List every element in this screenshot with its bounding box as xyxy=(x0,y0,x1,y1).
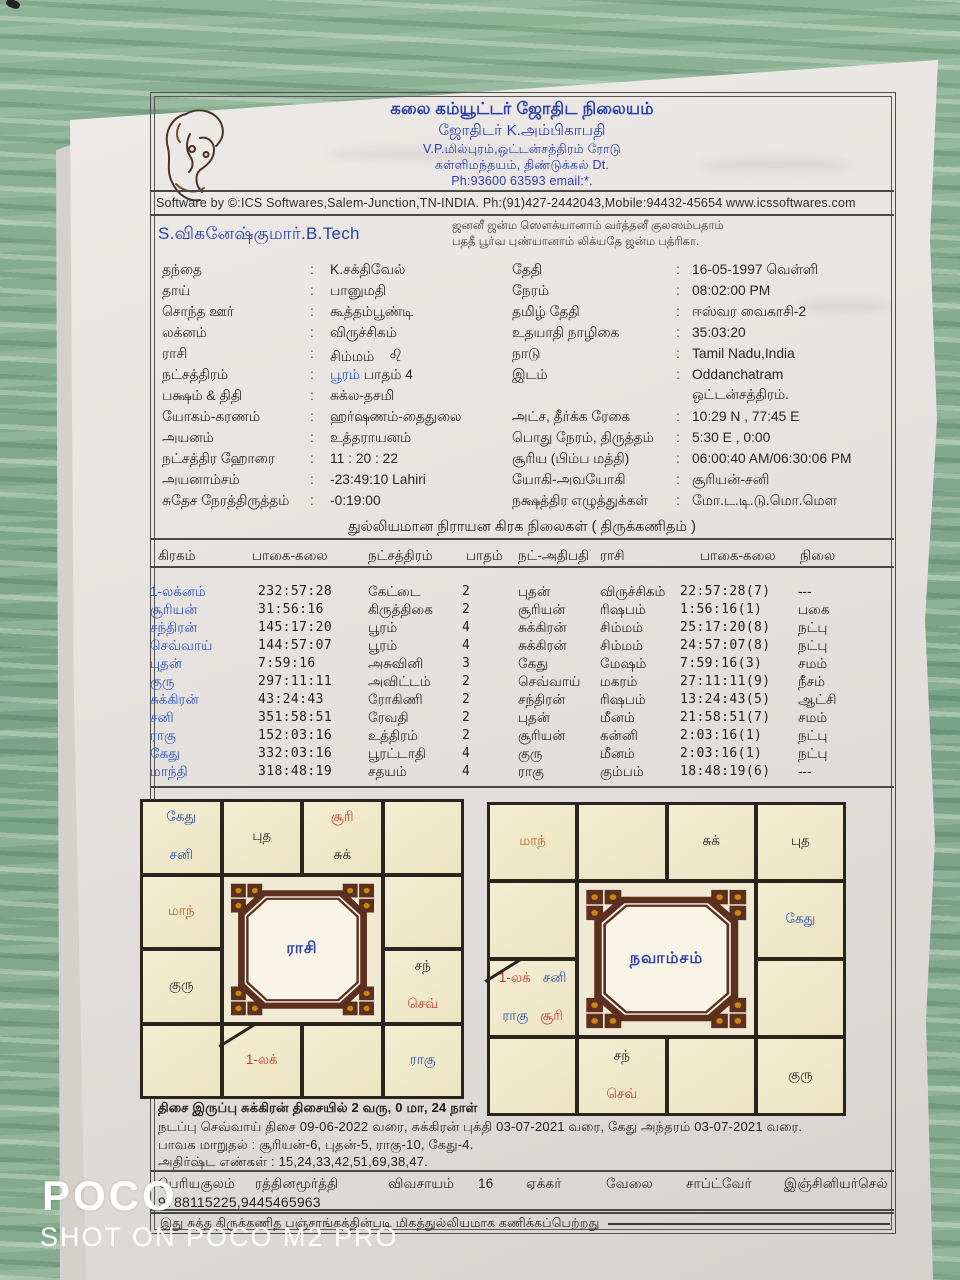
chart-cell-r1c0 xyxy=(490,883,575,957)
planet-cell: 318:48:19 xyxy=(258,764,332,779)
planet-line: மாந் xyxy=(519,833,546,851)
detail-value: 06:00:40 AM/06:30:06 PM xyxy=(692,451,852,466)
camera-watermark-brand: POCO xyxy=(42,1172,178,1220)
family-detail-item: விவசாயம் xyxy=(388,1176,454,1194)
planet-abbr: குரு xyxy=(169,977,193,995)
planet-cell: 332:03:16 xyxy=(258,746,332,761)
detail-value: பூரம் பாதம் 4 xyxy=(330,367,413,385)
detail-colon: : xyxy=(310,472,314,487)
org-address-line1: V.P.மில்புரம்,ஒட்டன்சத்திரம் ரோடு xyxy=(150,142,894,158)
chart-cell-r3c1: சந்செவ் xyxy=(579,1039,664,1113)
detail-colon: : xyxy=(310,304,314,319)
chart-cell-r1c3: கேது xyxy=(758,883,843,957)
column-header: கிரகம் xyxy=(158,548,196,566)
detail-row: நக்ஷத்திர எழுத்துக்கள்:மோ.ட.டி.டு.மொ.மௌ xyxy=(512,493,852,513)
planet-abbr: ராகு xyxy=(502,1008,528,1026)
planet-cell: 2 xyxy=(462,710,470,725)
detail-label: உதயாதி நாழிகை xyxy=(512,325,619,343)
chart-cell-r3c3: குரு xyxy=(758,1039,843,1113)
detail-value: 16-05-1997 வெள்ளி xyxy=(692,262,818,280)
detail-row: பக்ஷம் & திதி:சுக்ல-தசமி xyxy=(162,388,502,408)
planet-cell: 4 xyxy=(462,764,470,779)
planet-line: புத xyxy=(791,833,810,851)
planet-cell: சூரியன் xyxy=(518,602,565,620)
detail-label: அயனாம்சம் xyxy=(162,472,240,490)
detail-colon: : xyxy=(676,262,680,277)
planet-line: செவ் xyxy=(606,1086,637,1104)
planet-cell: 1-லக்னம் xyxy=(150,584,206,602)
detail-colon: : xyxy=(676,367,680,382)
footer-rule-2b xyxy=(150,1212,894,1214)
planet-cell: 145:17:20 xyxy=(258,620,332,635)
planet-cell: நட்பு xyxy=(798,620,827,638)
planet-row: குரு297:11:11அவிட்டம்2செவ்வாய்மகரம்27:11… xyxy=(150,674,894,691)
detail-label: நேரம் xyxy=(512,283,549,301)
detail-label: நக்ஷத்திர எழுத்துக்கள் xyxy=(512,493,648,511)
planet-row: சனி351:58:51ரேவதி2புதன்மீனம்21:58:51(7)ச… xyxy=(150,710,894,727)
planet-line: கேது xyxy=(785,911,815,929)
planet-abbr: சந் xyxy=(415,958,431,976)
planet-cell: 22:57:28(7) xyxy=(680,584,771,599)
detail-row: யோகி-அவயோகி:சூரியன்-சனி xyxy=(512,472,852,492)
detail-colon: : xyxy=(676,430,680,445)
title-rule xyxy=(150,538,894,540)
photo-corner-mark xyxy=(5,0,21,10)
planet-cell: உத்திரம் xyxy=(368,728,418,746)
detail-value-accent: பூரம் xyxy=(330,367,360,382)
org-name: கலை கம்யூட்டர் ஜோதிட நிலையம் xyxy=(150,100,894,121)
detail-label: பக்ஷம் & திதி xyxy=(162,388,242,406)
detail-label: யோகி-அவயோகி xyxy=(512,472,625,490)
chart-center: ராசி xyxy=(224,877,381,1022)
detail-colon: : xyxy=(676,409,680,424)
chart-cell-r0c3 xyxy=(385,802,462,873)
detail-label: தமிழ் தேதி xyxy=(512,304,580,322)
chart-cell-r1c3 xyxy=(385,877,462,948)
planet-cell: கும்பம் xyxy=(600,764,644,782)
detail-colon: : xyxy=(676,283,680,298)
planet-cell: சனி xyxy=(150,710,174,728)
detail-value: K.சக்திவேல் xyxy=(330,262,405,280)
detail-value: 08:02:00 PM xyxy=(692,283,770,298)
planet-abbr: கேது xyxy=(785,911,815,929)
planet-cell: சதயம் xyxy=(368,764,407,782)
planet-cell: பகை xyxy=(798,602,829,620)
column-header: நட்-அதிபதி xyxy=(518,548,589,566)
detail-row: யோகம்-கரணம்:ஹர்ஷணம்-தைதுலை xyxy=(162,409,502,429)
planet-cell: ரிஷபம் xyxy=(600,692,646,710)
chart-cell-r1c0: மாந் xyxy=(143,877,220,948)
planet-cell: ஆட்சி xyxy=(798,692,836,710)
planet-cell: குரு xyxy=(518,746,542,764)
detail-value: உத்தராயனம் xyxy=(330,430,411,448)
planet-cell: 21:58:51(7) xyxy=(680,710,771,725)
detail-label: தந்தை xyxy=(162,262,202,280)
planet-cell: 232:57:28 xyxy=(258,584,332,599)
planet-cell: 351:58:51 xyxy=(258,710,332,725)
planet-row: 1-லக்னம்232:57:28கேட்டை2புதன்விருச்சிகம்… xyxy=(150,584,894,601)
detail-value: சிம்மம்♌ xyxy=(330,346,403,367)
detail-value: Tamil Nadu,India xyxy=(692,346,795,361)
bhava-change-line: பாவக மாறுதல் : சூரியன்-6, புதன்-5, ராகு-… xyxy=(158,1137,474,1154)
chart-cell-r3c1: 1-லக் xyxy=(224,1026,301,1097)
footer-rule-2a xyxy=(150,1209,894,1211)
detail-label: நட்சத்திரம் xyxy=(162,367,228,385)
planet-cell: 2 xyxy=(462,584,470,599)
detail-value: 11 : 20 : 22 xyxy=(330,451,398,466)
planet-cell: 3 xyxy=(462,656,470,671)
current-dasa-line: நடப்பு செவ்வாய் திசை 09-06-2022 வரை, சுக… xyxy=(158,1119,802,1136)
family-detail-item: ரத்தினமூர்த்தி xyxy=(255,1176,338,1194)
planet-cell: --- xyxy=(798,584,812,599)
planet-abbr: புத xyxy=(791,833,810,851)
column-header: நிலை xyxy=(800,548,835,566)
column-header: பாகை-கலை xyxy=(252,548,328,566)
planet-abbr: சந் xyxy=(614,1048,630,1066)
planet-row: சுக்கிரன்43:24:43ரோகிணி2சந்திரன்ரிஷபம்13… xyxy=(150,692,894,709)
planet-cell: மீனம் xyxy=(600,746,635,764)
planet-cell: 152:03:16 xyxy=(258,728,332,743)
detail-value: சூரியன்-சனி xyxy=(692,472,769,490)
planet-row: ராகு152:03:16உத்திரம்2சூரியன்கன்னி2:03:1… xyxy=(150,728,894,745)
planet-cell: புதன் xyxy=(518,710,550,728)
detail-colon: : xyxy=(310,430,314,445)
detail-label: சுதேச நேரத்திருத்தம் xyxy=(162,493,289,511)
detail-row: சூரிய (பிம்ப மத்தி):06:00:40 AM/06:30:06… xyxy=(512,451,852,471)
chart-cell-r0c3: புத xyxy=(758,805,843,879)
planet-cell: செவ்வாய் xyxy=(150,638,212,656)
detail-label: ராசி xyxy=(162,346,187,364)
planet-cell: 24:57:07(8) xyxy=(680,638,771,653)
planet-cell: சுக்கிரன் xyxy=(518,620,567,638)
detail-value: 10:29 N , 77:45 E xyxy=(692,409,799,424)
planet-line: ராகு xyxy=(410,1052,436,1070)
detail-row: நேரம்:08:02:00 PM xyxy=(512,283,852,303)
planet-cell: 25:17:20(8) xyxy=(680,620,771,635)
detail-value-line2: ஒட்டன்சத்திரம். xyxy=(692,387,789,405)
detail-value: கூத்தம்பூண்டி xyxy=(330,304,413,322)
software-credit: Software by ©:ICS Softwares,Salem-Juncti… xyxy=(156,196,856,210)
planet-cell: 43:24:43 xyxy=(258,692,324,707)
planet-abbr: 1-லக் xyxy=(499,970,531,988)
planet-abbr: சுக் xyxy=(334,847,351,865)
planet-cell: நட்பு xyxy=(798,746,827,764)
planet-row: புதன்7:59:16அசுவினி3கேதுமேஷம்7:59:16(3)ச… xyxy=(150,656,894,673)
detail-value: மோ.ட.டி.டு.மொ.மௌ xyxy=(692,493,837,511)
planet-cell: சுக்கிரன் xyxy=(150,692,199,710)
detail-label: சொந்த ஊர் xyxy=(162,304,234,322)
chart-cell-r2c0: குரு xyxy=(143,951,220,1022)
planet-abbr: கேது xyxy=(166,809,196,827)
detail-label: அட்ச, தீர்க்க ரேகை xyxy=(512,409,630,427)
planet-cell: கேட்டை xyxy=(368,584,420,602)
planet-cell: 27:11:11(9) xyxy=(680,674,771,689)
detail-row: சுதேச நேரத்திருத்தம்:-0:19:00 xyxy=(162,493,502,513)
detail-colon: : xyxy=(676,304,680,319)
detail-label: நாடு xyxy=(512,346,540,364)
planet-cell: 7:59:16 xyxy=(258,656,316,671)
detail-value: 5:30 E , 0:00 xyxy=(692,430,770,445)
detail-value: பானுமதி xyxy=(330,283,386,301)
phone-numbers: 9788115225,9445465963 xyxy=(158,1194,321,1210)
detail-value: சுக்ல-தசமி xyxy=(330,388,394,406)
planet-cell: புதன் xyxy=(518,584,550,602)
leo-symbol-handwritten: ♌ xyxy=(387,345,404,366)
lucky-numbers-line: அதிர்ஷ்ட எண்கள் : 15,24,33,42,51,69,38,4… xyxy=(158,1154,428,1171)
software-divider xyxy=(150,214,894,216)
chart-cell-r3c2 xyxy=(304,1026,381,1097)
planet-cell: சந்திரன் xyxy=(150,620,197,638)
planet-line: புத xyxy=(252,828,271,846)
chart-cell-r3c3: ராகு xyxy=(385,1026,462,1097)
planet-cell: சூரியன் xyxy=(150,602,197,620)
closing-rule xyxy=(608,1223,891,1225)
header-divider xyxy=(150,190,894,192)
planet-abbr: செவ் xyxy=(407,996,438,1014)
chart-cell-r0c2: சுக் xyxy=(669,805,754,879)
detail-colon: : xyxy=(310,388,314,403)
detail-label: அயனம் xyxy=(162,430,214,448)
planet-cell: 297:11:11 xyxy=(258,674,332,689)
planet-cell: 2 xyxy=(462,692,470,707)
planet-cell: அவிட்டம் xyxy=(368,674,431,692)
detail-label: தேதி xyxy=(512,262,542,280)
chart-center: நவாம்சம் xyxy=(579,883,754,1035)
detail-row: தேதி:16-05-1997 வெள்ளி xyxy=(512,262,852,282)
planet-line: குரு xyxy=(788,1067,812,1085)
planet-abbr: மாந் xyxy=(168,903,195,921)
chart-cell-r0c0: கேதுசனி xyxy=(143,802,220,873)
planet-cell: நட்பு xyxy=(798,638,827,656)
planet-abbr: சுக் xyxy=(702,833,719,851)
planet-cell: சுக்கிரன் xyxy=(518,638,567,656)
chart-cell-r2c3 xyxy=(758,961,843,1035)
chart-cell-r0c1 xyxy=(579,805,664,879)
planet-line: செவ் xyxy=(407,996,438,1014)
planet-cell: 144:57:07 xyxy=(258,638,332,653)
detail-value: -23:49:10 Lahiri xyxy=(330,472,426,487)
detail-label: பொது நேரம், திருத்தம் xyxy=(512,430,654,448)
chart-cell-r0c2: சூரிசுக் xyxy=(304,802,381,873)
planet-cell: 1:56:16(1) xyxy=(680,602,762,617)
planet-table-header: கிரகம்பாகை-கலைநட்சத்திரம்பாதம்நட்-அதிபதி… xyxy=(150,548,894,564)
planet-row: மாந்தி318:48:19சதயம்4ராகுகும்பம்18:48:19… xyxy=(150,764,894,781)
family-detail-item: ஏக்கர் xyxy=(526,1176,562,1194)
org-address-line2: கள்ளிமந்தயம், திண்டுக்கல் Dt. xyxy=(150,158,894,174)
lagna-corner-mark xyxy=(216,1023,258,1049)
planet-cell: மேஷம் xyxy=(600,656,646,674)
dasa-balance-line: திசை இருப்பு சுக்கிரன் திசையில் 2 வரு, 0… xyxy=(158,1100,478,1117)
detail-colon: : xyxy=(310,367,314,382)
detail-label: நட்சத்திர ஹோரை xyxy=(162,451,275,469)
planet-cell: ரேவதி xyxy=(368,710,409,728)
planet-cell: கேது xyxy=(150,746,180,764)
planet-row: சந்திரன்145:17:20பூரம்4சுக்கிரன்சிம்மம்2… xyxy=(150,620,894,637)
planet-line: சுக் xyxy=(334,847,351,865)
planet-table-title: துல்லியமான நிராயன கிரக நிலைகள் ( திருக்க… xyxy=(150,519,894,537)
family-detail-item: சாப்ட்வேர் xyxy=(686,1176,752,1194)
planet-cell: ராகு xyxy=(150,728,176,746)
planet-cell: ரிஷபம் xyxy=(600,602,646,620)
planet-cell: கேது xyxy=(518,656,548,674)
column-header: நட்சத்திரம் xyxy=(368,548,433,566)
navamsam-chart: மாந்சுக்புதகேது1-லக்சனிராகுசூரிசந்செவ்கு… xyxy=(487,802,846,1116)
planet-line: கேது xyxy=(166,809,196,827)
chart-cell-r3c0 xyxy=(490,1039,575,1113)
blessing-line-2: பததீ பூர்வ புண்யானாம் லிக்யதே ஜன்ம பத்ரி… xyxy=(452,236,699,250)
detail-label: லக்னம் xyxy=(162,325,207,343)
detail-label: யோகம்-கரணம் xyxy=(162,409,260,427)
planet-cell: 2:03:16(1) xyxy=(680,728,762,743)
planet-abbr: சனி xyxy=(543,970,567,988)
chart-title: ராசி xyxy=(224,939,381,959)
planet-cell: சமம் xyxy=(798,656,827,674)
planet-line: 1-லக்சனி xyxy=(499,970,566,988)
chart-cell-r0c1: புத xyxy=(224,802,301,873)
detail-colon: : xyxy=(310,409,314,424)
planet-abbr: புத xyxy=(252,828,271,846)
planet-cell: பூரம் xyxy=(368,638,397,656)
blessing-line-1: ஜனனீ ஜன்ம ஸௌக்யானாம் வர்த்தனீ குலஸம்பதாம… xyxy=(452,220,724,234)
detail-colon: : xyxy=(310,262,314,277)
planet-cell: ராகு xyxy=(518,764,544,782)
chart-cell-r0c0: மாந் xyxy=(490,805,575,879)
planet-row: செவ்வாய்144:57:07பூரம்4சுக்கிரன்சிம்மம்2… xyxy=(150,638,894,655)
planet-cell: சமம் xyxy=(798,710,827,728)
planet-cell: 2:03:16(1) xyxy=(680,746,762,761)
detail-colon: : xyxy=(676,325,680,340)
detail-colon: : xyxy=(676,472,680,487)
chart-cell-r3c2 xyxy=(669,1039,754,1113)
footer-rule-1 xyxy=(150,1170,894,1172)
detail-label: சூரிய (பிம்ப மத்தி) xyxy=(512,451,629,469)
detail-colon: : xyxy=(310,493,314,508)
planet-cell: 18:48:19(6) xyxy=(680,764,771,779)
detail-row: அயனாம்சம்:-23:49:10 Lahiri xyxy=(162,472,502,492)
table-head-rule xyxy=(150,566,894,568)
planet-cell: 7:59:16(3) xyxy=(680,656,762,671)
planet-cell: கிருத்திகை xyxy=(368,602,433,620)
planet-line: ராகுசூரி xyxy=(502,1008,563,1026)
planet-cell: குரு xyxy=(150,674,174,692)
planet-cell: ரோகிணி xyxy=(368,692,423,710)
detail-row: அயனம்:உத்தராயனம் xyxy=(162,430,502,450)
detail-colon: : xyxy=(676,493,680,508)
detail-colon: : xyxy=(310,283,314,298)
table-bottom-rule xyxy=(150,786,894,788)
chart-cell-r3c0 xyxy=(143,1026,220,1097)
detail-value: விருச்சிகம் xyxy=(330,325,397,343)
planet-row: கேது332:03:16பூரட்டாதி4குருமீனம்2:03:16(… xyxy=(150,746,894,763)
detail-colon: : xyxy=(310,325,314,340)
detail-row: இடம்:Oddanchatramஒட்டன்சத்திரம். xyxy=(512,367,852,387)
planet-cell: நட்பு xyxy=(798,728,827,746)
detail-row: தாய்:பானுமதி xyxy=(162,283,502,303)
detail-label: இடம் xyxy=(512,367,548,385)
family-detail-item: 16 xyxy=(478,1176,493,1191)
planet-abbr: சூரி xyxy=(331,809,354,827)
family-detail-item: வேலை xyxy=(606,1176,653,1194)
detail-row: ராசி:சிம்மம்♌ xyxy=(162,346,502,366)
planet-line: மாந் xyxy=(168,903,195,921)
detail-colon: : xyxy=(676,451,680,466)
planet-cell: சிம்மம் xyxy=(600,620,643,638)
planet-cell: புதன் xyxy=(150,656,182,674)
detail-row: உதயாதி நாழிகை:35:03:20 xyxy=(512,325,852,345)
detail-row: நட்சத்திரம்:பூரம் பாதம் 4 xyxy=(162,367,502,387)
detail-row: நட்சத்திர ஹோரை:11 : 20 : 22 xyxy=(162,451,502,471)
planet-cell: மீனம் xyxy=(600,710,635,728)
org-phone: Ph:93600 63593 email:*. xyxy=(150,174,894,188)
planet-cell: மகரம் xyxy=(600,674,637,692)
chart-title: நவாம்சம் xyxy=(579,949,754,969)
planet-cell: பூரட்டாதி xyxy=(368,746,426,764)
planet-cell: விருச்சிகம் xyxy=(600,584,665,602)
detail-colon: : xyxy=(310,346,314,361)
detail-row: தமிழ் தேதி:ஈஸ்வர வைகாசி-2 xyxy=(512,304,852,324)
planet-line: குரு xyxy=(169,977,193,995)
planet-line: 1-லக் xyxy=(246,1052,278,1070)
detail-row: சொந்த ஊர்:கூத்தம்பூண்டி xyxy=(162,304,502,324)
column-header: பாகை-கலை xyxy=(700,548,776,566)
planet-line: சுக் xyxy=(702,833,719,851)
planet-cell: சூரியன் xyxy=(518,728,565,746)
detail-value: ஈஸ்வர வைகாசி-2 xyxy=(692,304,806,322)
detail-value: -0:19:00 xyxy=(330,493,381,508)
planet-abbr: சனி xyxy=(169,847,193,865)
detail-colon: : xyxy=(676,346,680,361)
detail-value: Oddanchatramஒட்டன்சத்திரம். xyxy=(692,367,789,405)
planet-line: சந் xyxy=(415,958,431,976)
detail-value: ஹர்ஷணம்-தைதுலை xyxy=(330,409,461,427)
planet-abbr: செவ் xyxy=(606,1086,637,1104)
planet-cell: அசுவினி xyxy=(368,656,423,674)
camera-watermark-model: SHOT ON POCO M2 PRO xyxy=(40,1222,399,1253)
chart-cell-r2c0: 1-லக்சனிராகுசூரி xyxy=(490,961,575,1035)
planet-row: சூரியன்31:56:16கிருத்திகை2சூரியன்ரிஷபம்1… xyxy=(150,602,894,619)
planet-abbr: மாந் xyxy=(519,833,546,851)
planet-abbr: குரு xyxy=(788,1067,812,1085)
detail-label: தாய் xyxy=(162,283,190,301)
planet-line: சந் xyxy=(614,1048,630,1066)
column-header: ராசி xyxy=(600,548,625,566)
planet-cell: 4 xyxy=(462,746,470,761)
detail-value: 35:03:20 xyxy=(692,325,746,340)
detail-colon: : xyxy=(310,451,314,466)
planet-cell: மாந்தி xyxy=(150,764,188,782)
planet-cell: 13:24:43(5) xyxy=(680,692,771,707)
planet-cell: நீசம் xyxy=(798,674,825,692)
astrologer-name: ஜோதிடர் K.அம்பிகாபதி xyxy=(150,122,894,141)
planet-cell: கன்னி xyxy=(600,728,638,746)
detail-row: லக்னம்:விருச்சிகம் xyxy=(162,325,502,345)
planet-line: சனி xyxy=(169,847,193,865)
planet-abbr: ராகு xyxy=(410,1052,436,1070)
rasi-chart: கேதுசனிபுதசூரிசுக்மாந்குருசந்செவ்1-லக்ரா… xyxy=(140,799,464,1099)
planet-line: சூரி xyxy=(331,809,354,827)
planet-cell: 4 xyxy=(462,620,470,635)
detail-row: நாடு:Tamil Nadu,India xyxy=(512,346,852,366)
planet-cell: சந்திரன் xyxy=(518,692,565,710)
planet-cell: பூரம் xyxy=(368,620,397,638)
column-header: பாதம் xyxy=(466,548,503,566)
family-detail-item: இஞ்சினியர்செல் xyxy=(784,1176,888,1194)
detail-row: பொது நேரம், திருத்தம்:5:30 E , 0:00 xyxy=(512,430,852,450)
native-name: S.விகனேஷ்குமார்.B.Tech xyxy=(158,224,360,246)
detail-row: அட்ச, தீர்க்க ரேகை:10:29 N , 77:45 E xyxy=(512,409,852,429)
planet-cell: 2 xyxy=(462,728,470,743)
planet-abbr: சூரி xyxy=(540,1008,563,1026)
